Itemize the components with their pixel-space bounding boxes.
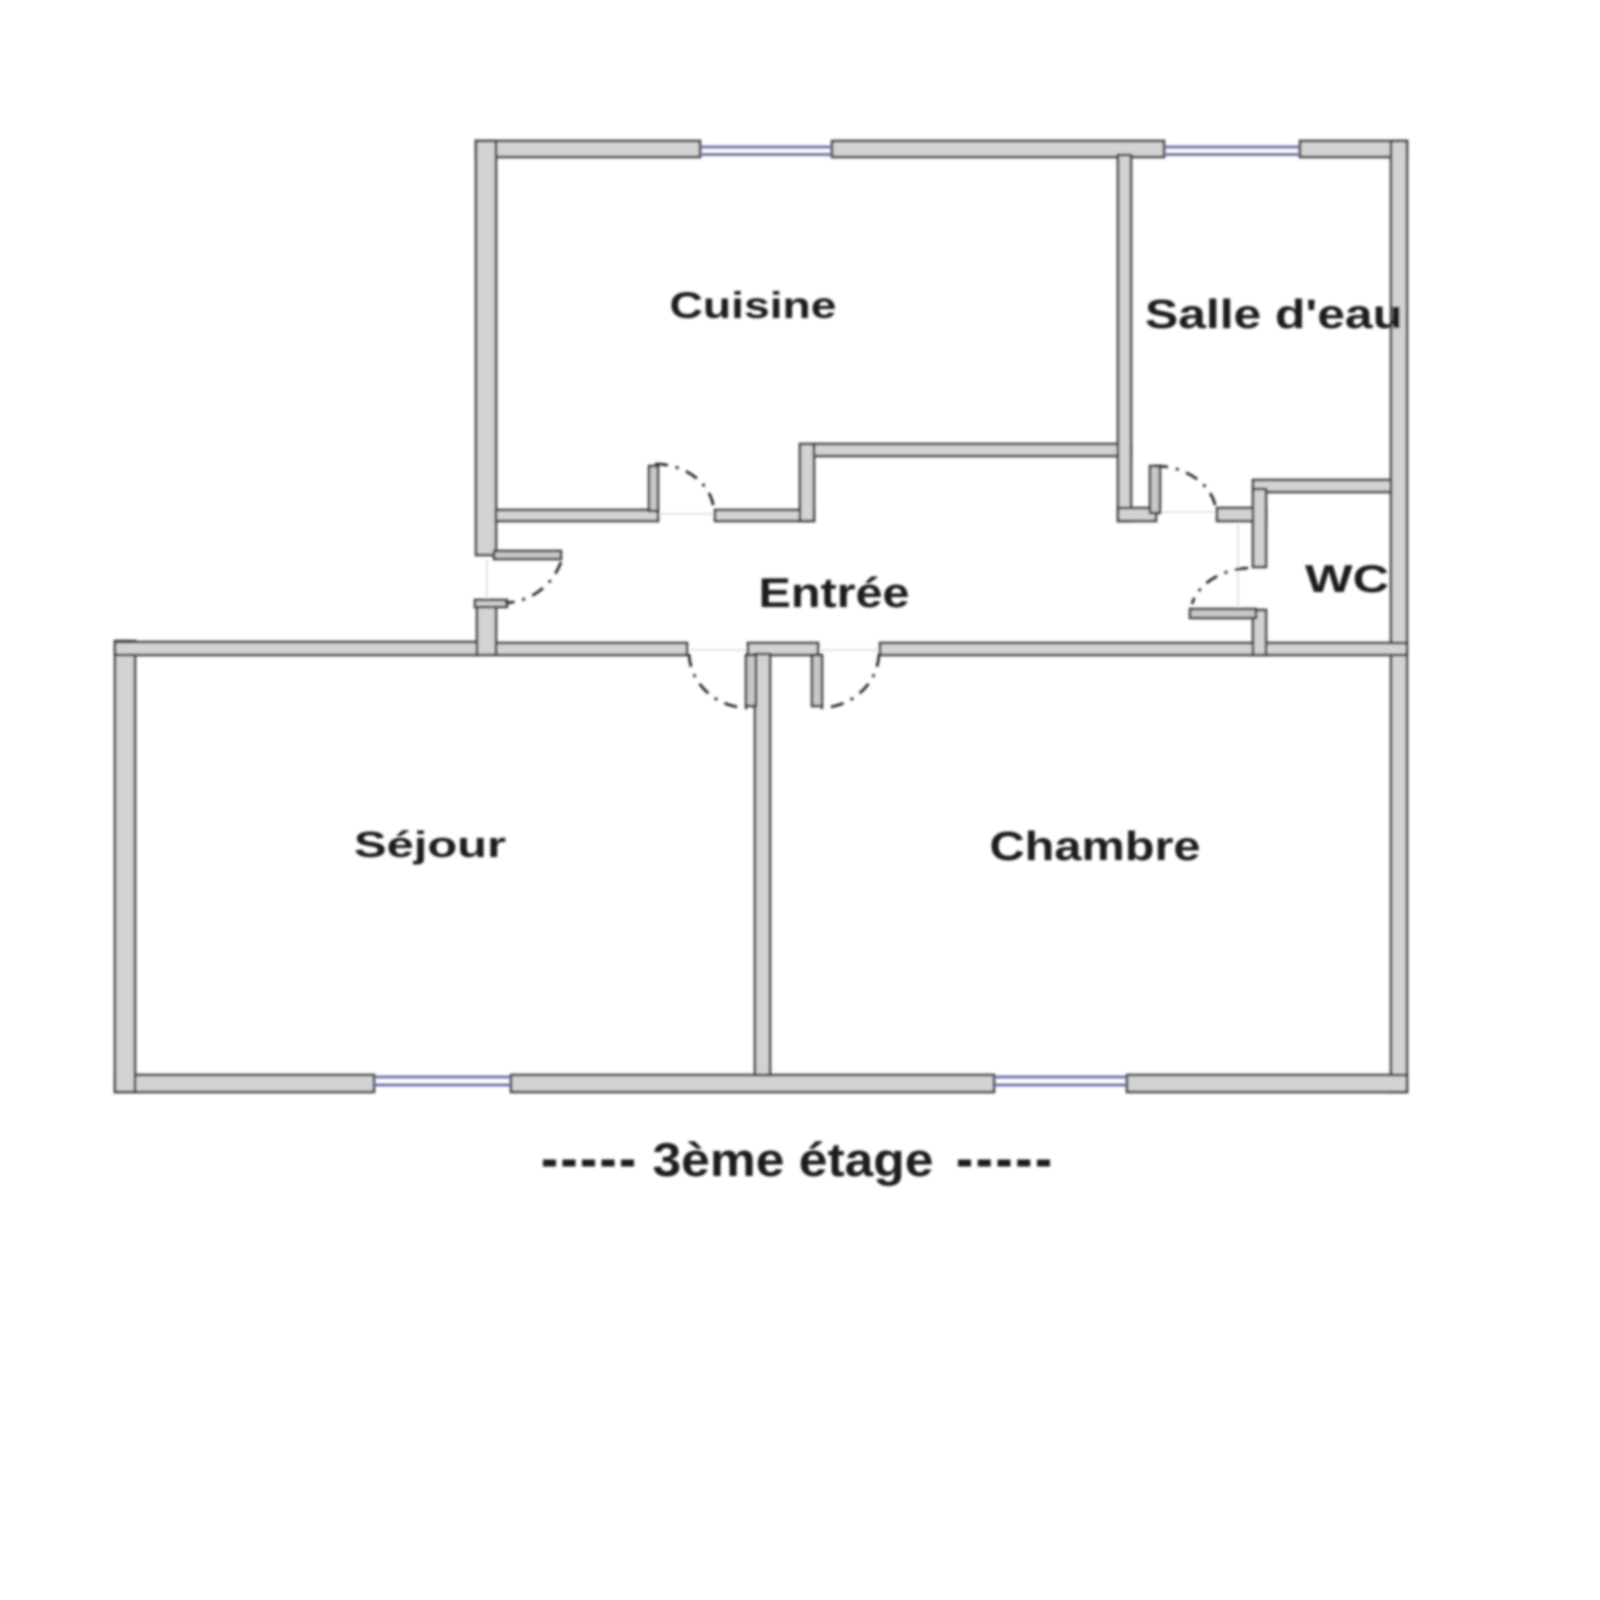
svg-text:Chambre: Chambre: [990, 823, 1201, 869]
svg-text:Séjour: Séjour: [354, 824, 506, 865]
svg-text:Salle d'eau: Salle d'eau: [1145, 291, 1403, 337]
svg-text:WC: WC: [1305, 558, 1389, 601]
svg-text:3ème étage: 3ème étage: [653, 1133, 934, 1186]
svg-text:Entrée: Entrée: [759, 569, 910, 616]
svg-text:Cuisine: Cuisine: [670, 285, 837, 326]
